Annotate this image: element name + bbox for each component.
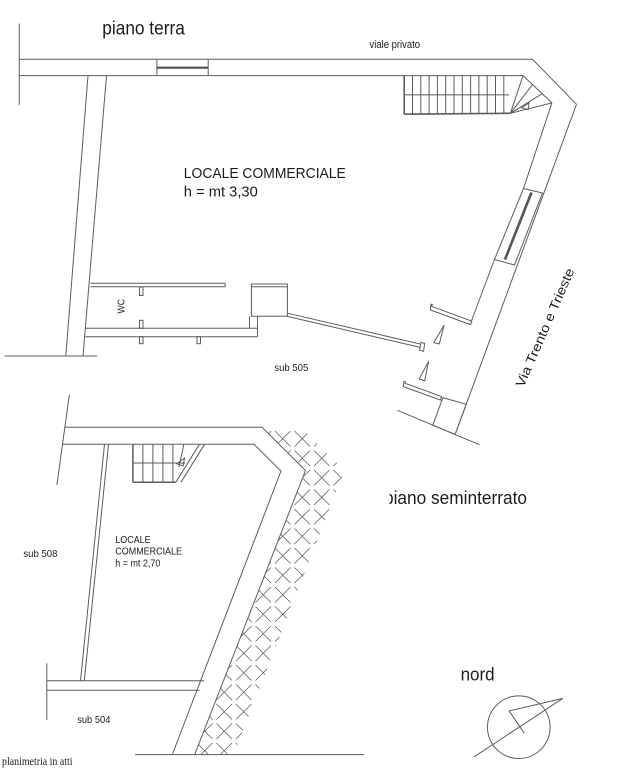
- svg-text:WC: WC: [117, 299, 128, 314]
- svg-text:h = mt 3,30: h = mt 3,30: [184, 184, 258, 201]
- svg-text:Via Trento e Trieste: Via Trento e Trieste: [512, 266, 577, 389]
- svg-text:viale privato: viale privato: [370, 39, 421, 51]
- svg-text:LOCALE COMMERCIALE: LOCALE COMMERCIALE: [184, 165, 346, 182]
- svg-text:sub 508: sub 508: [23, 548, 57, 560]
- svg-text:piano terra: piano terra: [102, 19, 185, 40]
- svg-text:LOCALE: LOCALE: [115, 534, 150, 546]
- svg-text:sub 505: sub 505: [274, 362, 308, 374]
- svg-text:h = mt 2,70: h = mt 2,70: [115, 558, 160, 570]
- svg-text:piano seminterrato: piano seminterrato: [384, 488, 527, 508]
- svg-text:sub 504: sub 504: [77, 714, 110, 726]
- svg-text:planimetria in atti: planimetria in atti: [2, 756, 73, 768]
- svg-text:COMMERCIALE: COMMERCIALE: [115, 546, 182, 558]
- svg-text:nord: nord: [461, 665, 495, 685]
